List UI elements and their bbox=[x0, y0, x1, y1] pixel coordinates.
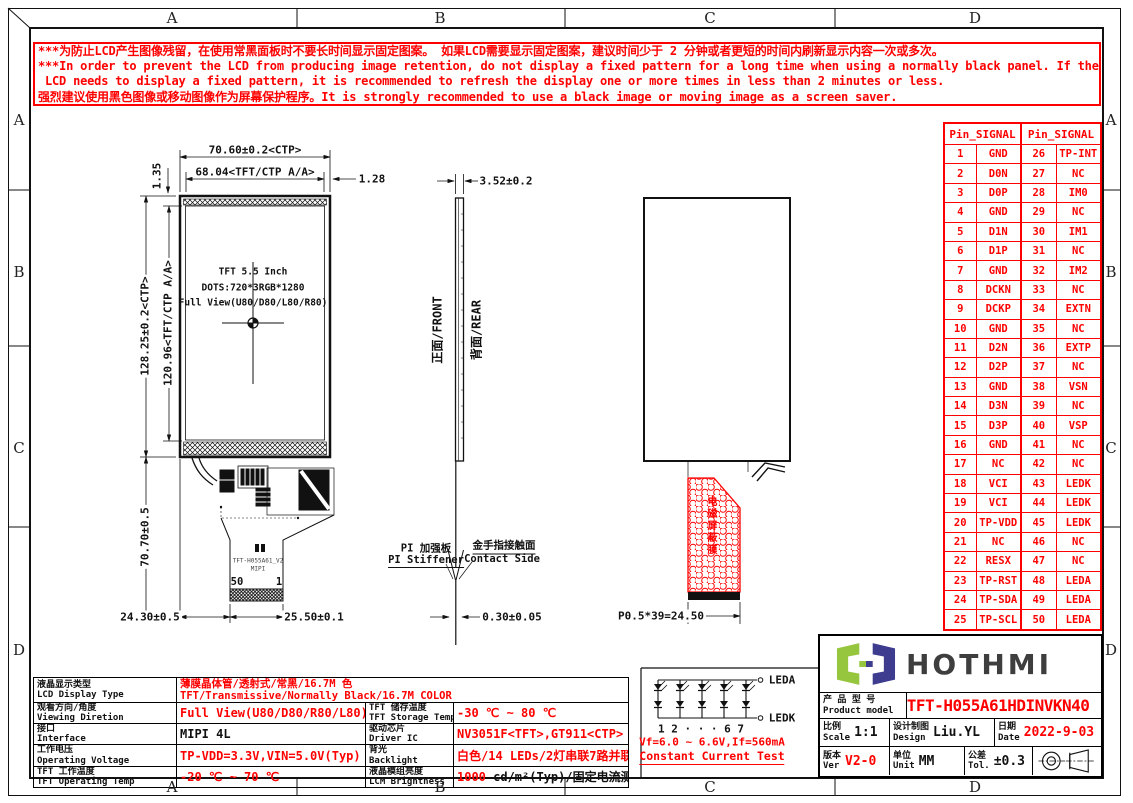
pin-signal-cell: DCKN bbox=[976, 280, 1021, 299]
pin-number-cell: 11 bbox=[944, 338, 976, 357]
pin-number-cell: 5 bbox=[944, 222, 976, 241]
pin-row: 1GND26TP-INT bbox=[944, 145, 1101, 164]
grid-letter-top-c: C bbox=[704, 9, 715, 27]
warning-line-en-1: ***In order to prevent the LCD from prod… bbox=[35, 59, 1099, 74]
spec-value: -20 ℃ ~ 70 ℃ bbox=[177, 766, 366, 787]
pin-signal-cell: NC bbox=[1056, 241, 1101, 260]
side-front-label: 正面/FRONT bbox=[429, 294, 446, 365]
version-label-zh: 版本 bbox=[823, 751, 841, 761]
spec-table: 液晶显示类型 LCD Display Type 薄膜晶体管/透射式/常黑/16.… bbox=[33, 677, 629, 788]
pin-number-cell: 6 bbox=[944, 241, 976, 260]
pin-row: 9DCKP34EXTN bbox=[944, 300, 1101, 319]
dim-height-ctp: 128.25±0.2<CTP> bbox=[139, 274, 152, 377]
spec-value-zh: 薄膜晶体管/透射式/常黑/16.7M 色 bbox=[180, 678, 628, 690]
pin-signal-cell: RESX bbox=[976, 552, 1021, 571]
pin-signal-cell: D2P bbox=[976, 358, 1021, 377]
dim-tail-left: 24.30±0.5 bbox=[118, 611, 182, 624]
datasheet-page: { "colors": {"red": "#ff0000", "black": … bbox=[0, 0, 1133, 803]
pin-signal-cell: LEDA bbox=[1056, 610, 1101, 630]
pin-number-cell: 32 bbox=[1021, 261, 1056, 280]
date-label-en: Date bbox=[998, 733, 1020, 743]
pin-signal-cell: VSP bbox=[1056, 416, 1101, 435]
pin-signal-cell: NC bbox=[976, 532, 1021, 551]
pin-signal-cell: GND bbox=[976, 145, 1021, 164]
warning-line-mixed: 强烈建议使用黑色图像或移动图像作为屏幕保护程序。It is strongly r… bbox=[35, 90, 1099, 105]
pin-row: 15D3P40VSP bbox=[944, 416, 1101, 435]
pin-signal-cell: NC bbox=[1056, 552, 1101, 571]
hothmi-logo-icon bbox=[834, 641, 898, 687]
pin-signal-cell: TP-SDA bbox=[976, 590, 1021, 609]
pin-signal-cell: NC bbox=[976, 455, 1021, 474]
pin-signal-cell: D3P bbox=[976, 416, 1021, 435]
pin-signal-cell: NC bbox=[1056, 319, 1101, 338]
pin-number-cell: 39 bbox=[1021, 397, 1056, 416]
spec-value: NV3051F<TFT>,GT911<CTP> bbox=[454, 724, 629, 745]
pin-number-cell: 49 bbox=[1021, 590, 1056, 609]
tolerance-label-zh: 公差 bbox=[968, 751, 990, 761]
pin-row: 16GND41NC bbox=[944, 435, 1101, 454]
pin-number-cell: 29 bbox=[1021, 203, 1056, 222]
dim-tail-height: 70.70±0.5 bbox=[139, 505, 152, 569]
front-view-size-label: TFT 5.5 Inch bbox=[219, 267, 288, 278]
pin-number-cell: 23 bbox=[944, 571, 976, 590]
contact-side-label-zh: 金手指接触面 bbox=[473, 538, 536, 555]
pin-signal-cell: NC bbox=[1056, 203, 1101, 222]
grid-letter-top-b: B bbox=[434, 9, 445, 27]
front-view bbox=[180, 196, 330, 457]
pin-row: 7GND32IM2 bbox=[944, 261, 1101, 280]
product-model-row: 产 品 型 号 Product model TFT-H055A61HDINVKN… bbox=[820, 692, 1101, 718]
dim-width-aa: 68.04<TFT/CTP A/A> bbox=[193, 166, 316, 179]
pin-signal-cell: D0P bbox=[976, 183, 1021, 202]
product-model-label-zh: 产 品 型 号 bbox=[823, 695, 893, 705]
spec-value: TP-VDD=3.3V,VIN=5.0V(Typ) bbox=[177, 745, 366, 766]
designer-value: Liu.YL bbox=[933, 725, 980, 740]
pin-signal-cell: D3N bbox=[976, 397, 1021, 416]
pin-row: 11D2N36EXTP bbox=[944, 338, 1101, 357]
pin-row: 20TP-VDD45LEDK bbox=[944, 513, 1101, 532]
grid-letter-bottom-d: D bbox=[969, 778, 981, 796]
pin-signal-cell: LEDA bbox=[1056, 571, 1101, 590]
design-label-zh: 设计制图 bbox=[893, 722, 929, 732]
image-retention-warning: ***为防止LCD产生图像残留，在使用常黑面板时不要长时间显示固定图案。 如果L… bbox=[33, 42, 1101, 106]
warning-line-zh-1: ***为防止LCD产生图像残留，在使用常黑面板时不要长时间显示固定图案。 如果L… bbox=[35, 44, 1099, 59]
pin-row: 6D1P31NC bbox=[944, 241, 1101, 260]
pin-row: 3D0P28IM0 bbox=[944, 183, 1101, 202]
pin-number-cell: 46 bbox=[1021, 532, 1056, 551]
pin-signal-cell: NC bbox=[1056, 164, 1101, 183]
logo-row: HOTHMI bbox=[820, 636, 1101, 692]
spec-row: 接口 Interface MIPI 4L 驱动芯片 Driver IC NV30… bbox=[34, 724, 629, 745]
pin-number-cell: 22 bbox=[944, 552, 976, 571]
pin-row: 21NC46NC bbox=[944, 532, 1101, 551]
pin-number-cell: 9 bbox=[944, 300, 976, 319]
dim-fpc-thickness: 0.30±0.05 bbox=[482, 611, 542, 624]
pin-number-cell: 36 bbox=[1021, 338, 1056, 357]
leda-label: LEDA bbox=[769, 674, 796, 687]
dim-thickness: 3.52±0.2 bbox=[480, 175, 533, 188]
led-index-row: 1 2 · · · 6 7 bbox=[658, 723, 744, 736]
pin-number-cell: 34 bbox=[1021, 300, 1056, 319]
pin-number-cell: 20 bbox=[944, 513, 976, 532]
pin-number-cell: 14 bbox=[944, 397, 976, 416]
front-view-viewangle-label: Full View(U80/D80/L80/R80) bbox=[179, 298, 328, 309]
led-vf-spec: Vf=6.0 ~ 6.6V,If=560mA bbox=[639, 736, 785, 749]
constant-current-test-label: Constant Current Test bbox=[639, 749, 784, 765]
pin-number-cell: 43 bbox=[1021, 474, 1056, 493]
product-model-label-en: Product model bbox=[823, 706, 893, 716]
grid-letter-right-d: D bbox=[1105, 641, 1117, 659]
pin-number-cell: 19 bbox=[944, 494, 976, 513]
version-label-en: Ver bbox=[823, 761, 841, 771]
fpc-model-text: TFT-H055A61_V2 bbox=[233, 558, 284, 565]
pin-signal-cell: TP-RST bbox=[976, 571, 1021, 590]
grid-letter-bottom-b: B bbox=[434, 778, 445, 796]
pin-signal-cell: D1P bbox=[976, 241, 1021, 260]
pin-row: 22RESX47NC bbox=[944, 552, 1101, 571]
pin-signal-cell: GND bbox=[976, 261, 1021, 280]
spec-label-en: TFT Storage Temp bbox=[369, 713, 453, 723]
spec-label-en: Operating Voltage bbox=[37, 756, 176, 766]
pin-signal-cell: LEDK bbox=[1056, 513, 1101, 532]
pin-table-body: 1GND26TP-INT2D0N27NC3D0P28IM04GND29NC5D1… bbox=[944, 145, 1101, 630]
pin-number-cell: 38 bbox=[1021, 377, 1056, 396]
pin-number-cell: 37 bbox=[1021, 358, 1056, 377]
pin-number-cell: 2 bbox=[944, 164, 976, 183]
pin-number-cell: 16 bbox=[944, 435, 976, 454]
pin-row: 2D0N27NC bbox=[944, 164, 1101, 183]
spec-value-brightness-rest: cd/m²(Typ)/固定电流测试 bbox=[486, 770, 629, 784]
pin-number-cell: 17 bbox=[944, 455, 976, 474]
pin-row: 14D3N39NC bbox=[944, 397, 1101, 416]
pin-signal-cell: TP-INT bbox=[1056, 145, 1101, 164]
fpc-tail bbox=[192, 458, 334, 601]
pin-signal-table: Pin_SIGNAL Pin_SIGNAL 1GND26TP-INT2D0N27… bbox=[943, 122, 1102, 631]
projection-symbol-icon bbox=[1036, 749, 1098, 773]
pin-signal-cell: TP-SCL bbox=[976, 610, 1021, 630]
tolerance-value: ±0.3 bbox=[994, 754, 1025, 769]
brand-name: HOTHMI bbox=[906, 648, 1052, 681]
warning-line-en-2: LCD needs to display a fixed pattern, it… bbox=[35, 74, 1099, 89]
pin-row: 24TP-SDA49LEDA bbox=[944, 590, 1101, 609]
scale-design-date-row: 比例 Scale 1:1 设计制图 Design Liu.YL 日期 Date … bbox=[820, 718, 1101, 746]
pin-signal-cell: IM0 bbox=[1056, 183, 1101, 202]
pin-signal-cell: LEDA bbox=[1056, 590, 1101, 609]
unit-label-en: Unit bbox=[893, 761, 915, 771]
pin-number-cell: 47 bbox=[1021, 552, 1056, 571]
pin-number-cell: 1 bbox=[944, 145, 976, 164]
grid-letter-right-c: C bbox=[1105, 439, 1116, 457]
dim-width-ctp: 70.60±0.2<CTP> bbox=[207, 144, 304, 157]
pin-table-header-row: Pin_SIGNAL Pin_SIGNAL bbox=[944, 123, 1101, 145]
pin-number-cell: 3 bbox=[944, 183, 976, 202]
pin-signal-cell: LEDK bbox=[1056, 494, 1101, 513]
spec-label-zh: 背光 bbox=[369, 745, 453, 755]
title-block: HOTHMI 产 品 型 号 Product model TFT-H055A61… bbox=[818, 634, 1103, 778]
pin-number-cell: 44 bbox=[1021, 494, 1056, 513]
pin-table-header-left: Pin_SIGNAL bbox=[944, 123, 1021, 145]
spec-label-zh: 液晶模组亮度 bbox=[369, 767, 453, 777]
scale-value: 1:1 bbox=[854, 725, 877, 740]
pin-signal-cell: NC bbox=[1056, 358, 1101, 377]
pin-number-cell: 35 bbox=[1021, 319, 1056, 338]
grid-letter-bottom-c: C bbox=[704, 778, 715, 796]
scale-label-en: Scale bbox=[823, 733, 850, 743]
pin-signal-cell: NC bbox=[1056, 397, 1101, 416]
pin-signal-cell: NC bbox=[1056, 435, 1101, 454]
pin-signal-cell: EXTP bbox=[1056, 338, 1101, 357]
pin-signal-cell: IM2 bbox=[1056, 261, 1101, 280]
pin-number-cell: 25 bbox=[944, 610, 976, 630]
pin-signal-cell: D1N bbox=[976, 222, 1021, 241]
pin-signal-cell: NC bbox=[1056, 280, 1101, 299]
spec-label-zh: 驱动芯片 bbox=[369, 724, 453, 734]
side-view bbox=[446, 198, 472, 645]
date-value: 2022-9-03 bbox=[1024, 725, 1094, 740]
fpc-mipi-text: MIPI bbox=[251, 566, 265, 573]
pin-number-cell: 13 bbox=[944, 377, 976, 396]
date-label-zh: 日期 bbox=[998, 722, 1020, 732]
dim-top-bezel: 1.35 bbox=[151, 161, 164, 192]
ver-unit-tol-row: 版本 Ver V2-0 单位 Unit MM 公差 Tol. ±0.3 bbox=[820, 746, 1101, 775]
pin-signal-cell: D2N bbox=[976, 338, 1021, 357]
unit-value: MM bbox=[919, 754, 935, 769]
grid-letter-left-a: A bbox=[14, 111, 25, 129]
pin-row: 13GND38VSN bbox=[944, 377, 1101, 396]
pin-signal-cell: GND bbox=[976, 203, 1021, 222]
spec-value-en: TFT/Transmissive/Normally Black/16.7M CO… bbox=[180, 690, 628, 702]
pin-signal-cell: GND bbox=[976, 319, 1021, 338]
pin-signal-cell: TP-VDD bbox=[976, 513, 1021, 532]
connector-pin1-label: 1 bbox=[276, 576, 282, 588]
product-model-value: TFT-H055A61HDINVKN40 bbox=[907, 696, 1090, 715]
pin-signal-cell: NC bbox=[1056, 455, 1101, 474]
pin-number-cell: 40 bbox=[1021, 416, 1056, 435]
dim-connector-pitch: P0.5*39=24.50 bbox=[616, 610, 706, 623]
pin-signal-cell: GND bbox=[976, 435, 1021, 454]
pin-signal-cell: EXTN bbox=[1056, 300, 1101, 319]
pin-row: 5D1N30IM1 bbox=[944, 222, 1101, 241]
spec-value: MIPI 4L bbox=[177, 724, 366, 745]
pin-number-cell: 41 bbox=[1021, 435, 1056, 454]
pin-number-cell: 42 bbox=[1021, 455, 1056, 474]
spec-label-en: TFT Operating Temp bbox=[37, 777, 176, 787]
front-view-dots-label: DOTS:720*3RGB*1280 bbox=[202, 283, 305, 294]
pin-number-cell: 18 bbox=[944, 474, 976, 493]
pin-signal-cell: LEDK bbox=[1056, 474, 1101, 493]
spec-label-zh: 液晶显示类型 bbox=[37, 680, 176, 690]
pin-row: 12D2P37NC bbox=[944, 358, 1101, 377]
pin-signal-cell: NC bbox=[1056, 532, 1101, 551]
pin-number-cell: 45 bbox=[1021, 513, 1056, 532]
pin-number-cell: 10 bbox=[944, 319, 976, 338]
pin-signal-cell: GND bbox=[976, 377, 1021, 396]
pin-row: 25TP-SCL50LEDA bbox=[944, 610, 1101, 630]
grid-letter-right-b: B bbox=[1105, 263, 1116, 281]
pin-number-cell: 24 bbox=[944, 590, 976, 609]
spec-label-en: Interface bbox=[37, 734, 176, 744]
scale-label-zh: 比例 bbox=[823, 722, 850, 732]
grid-letter-bottom-a: A bbox=[167, 778, 178, 796]
pin-number-cell: 15 bbox=[944, 416, 976, 435]
dim-right-bezel: 1.28 bbox=[359, 173, 386, 186]
spec-label-zh: TFT 储存温度 bbox=[369, 703, 453, 713]
spec-value: Full View(U80/D80/R80/L80) bbox=[177, 703, 366, 724]
tolerance-label-en: Tol. bbox=[968, 761, 990, 771]
pin-number-cell: 27 bbox=[1021, 164, 1056, 183]
pin-number-cell: 4 bbox=[944, 203, 976, 222]
spec-row: 观看方向/角度 Viewing Diretion Full View(U80/D… bbox=[34, 703, 629, 724]
spec-row: 液晶显示类型 LCD Display Type 薄膜晶体管/透射式/常黑/16.… bbox=[34, 678, 629, 703]
pin-row: 8DCKN33NC bbox=[944, 280, 1101, 299]
grid-letter-left-b: B bbox=[13, 263, 24, 281]
pin-signal-cell: VCI bbox=[976, 494, 1021, 513]
pin-number-cell: 33 bbox=[1021, 280, 1056, 299]
side-rear-label: 背面/REAR bbox=[468, 298, 485, 362]
spec-value-brightness: 1000 bbox=[457, 770, 486, 784]
spec-label-en: Backlight bbox=[369, 756, 453, 766]
grid-letter-top-d: D bbox=[969, 9, 981, 27]
pin-row: 17NC42NC bbox=[944, 455, 1101, 474]
pin-number-cell: 8 bbox=[944, 280, 976, 299]
dim-tail-right: 25.50±0.1 bbox=[282, 611, 346, 624]
shield-film-label: 电磁屏蔽膜 bbox=[703, 496, 718, 556]
stiffener-label-en: PI Stiffener bbox=[388, 554, 464, 568]
pin-row: 10GND35NC bbox=[944, 319, 1101, 338]
pin-number-cell: 21 bbox=[944, 532, 976, 551]
spec-label-en: Driver IC bbox=[369, 734, 453, 744]
version-value: V2-0 bbox=[845, 754, 876, 769]
pin-row: 18VCI43LEDK bbox=[944, 474, 1101, 493]
pin-number-cell: 28 bbox=[1021, 183, 1056, 202]
pin-signal-cell: VSN bbox=[1056, 377, 1101, 396]
pin-signal-cell: D0N bbox=[976, 164, 1021, 183]
pin-signal-cell: IM1 bbox=[1056, 222, 1101, 241]
contact-side-label-en: Contact Side bbox=[464, 553, 540, 565]
pin-signal-cell: DCKP bbox=[976, 300, 1021, 319]
pin-row: 23TP-RST48LEDA bbox=[944, 571, 1101, 590]
pin-number-cell: 7 bbox=[944, 261, 976, 280]
pin-signal-cell: VCI bbox=[976, 474, 1021, 493]
unit-label-zh: 单位 bbox=[893, 751, 915, 761]
pin-number-cell: 48 bbox=[1021, 571, 1056, 590]
spec-label-zh: 工作电压 bbox=[37, 745, 176, 755]
spec-label-zh: TFT 工作温度 bbox=[37, 767, 176, 777]
dim-height-aa: 120.96<TFT/CTP A/A> bbox=[162, 258, 175, 388]
spec-row: 工作电压 Operating Voltage TP-VDD=3.3V,VIN=5… bbox=[34, 745, 629, 766]
spec-row: TFT 工作温度 TFT Operating Temp -20 ℃ ~ 70 ℃… bbox=[34, 766, 629, 787]
pin-table-header-right: Pin_SIGNAL bbox=[1021, 123, 1101, 145]
spec-label-zh: 观看方向/角度 bbox=[37, 703, 176, 713]
spec-value: 白色/14 LEDs/2灯串联7路并联 bbox=[454, 745, 629, 766]
pin-number-cell: 12 bbox=[944, 358, 976, 377]
grid-letter-right-a: A bbox=[1106, 111, 1117, 129]
pin-row: 19VCI44LEDK bbox=[944, 494, 1101, 513]
grid-letter-left-c: C bbox=[13, 439, 24, 457]
connector-pin50-label: 50 bbox=[231, 576, 244, 588]
pin-number-cell: 50 bbox=[1021, 610, 1056, 630]
spec-label-zh: 接口 bbox=[37, 724, 176, 734]
pin-row: 4GND29NC bbox=[944, 203, 1101, 222]
rear-view bbox=[644, 198, 790, 624]
design-label-en: Design bbox=[893, 733, 929, 743]
ledk-label: LEDK bbox=[769, 712, 796, 725]
pin-number-cell: 26 bbox=[1021, 145, 1056, 164]
grid-letter-top-a: A bbox=[167, 9, 178, 27]
grid-letter-left-d: D bbox=[13, 641, 25, 659]
spec-label-en: LCD Display Type bbox=[37, 690, 176, 700]
spec-value: -30 ℃ ~ 80 ℃ bbox=[454, 703, 629, 724]
spec-label-en: Viewing Diretion bbox=[37, 713, 176, 723]
pin-number-cell: 30 bbox=[1021, 222, 1056, 241]
pin-number-cell: 31 bbox=[1021, 241, 1056, 260]
